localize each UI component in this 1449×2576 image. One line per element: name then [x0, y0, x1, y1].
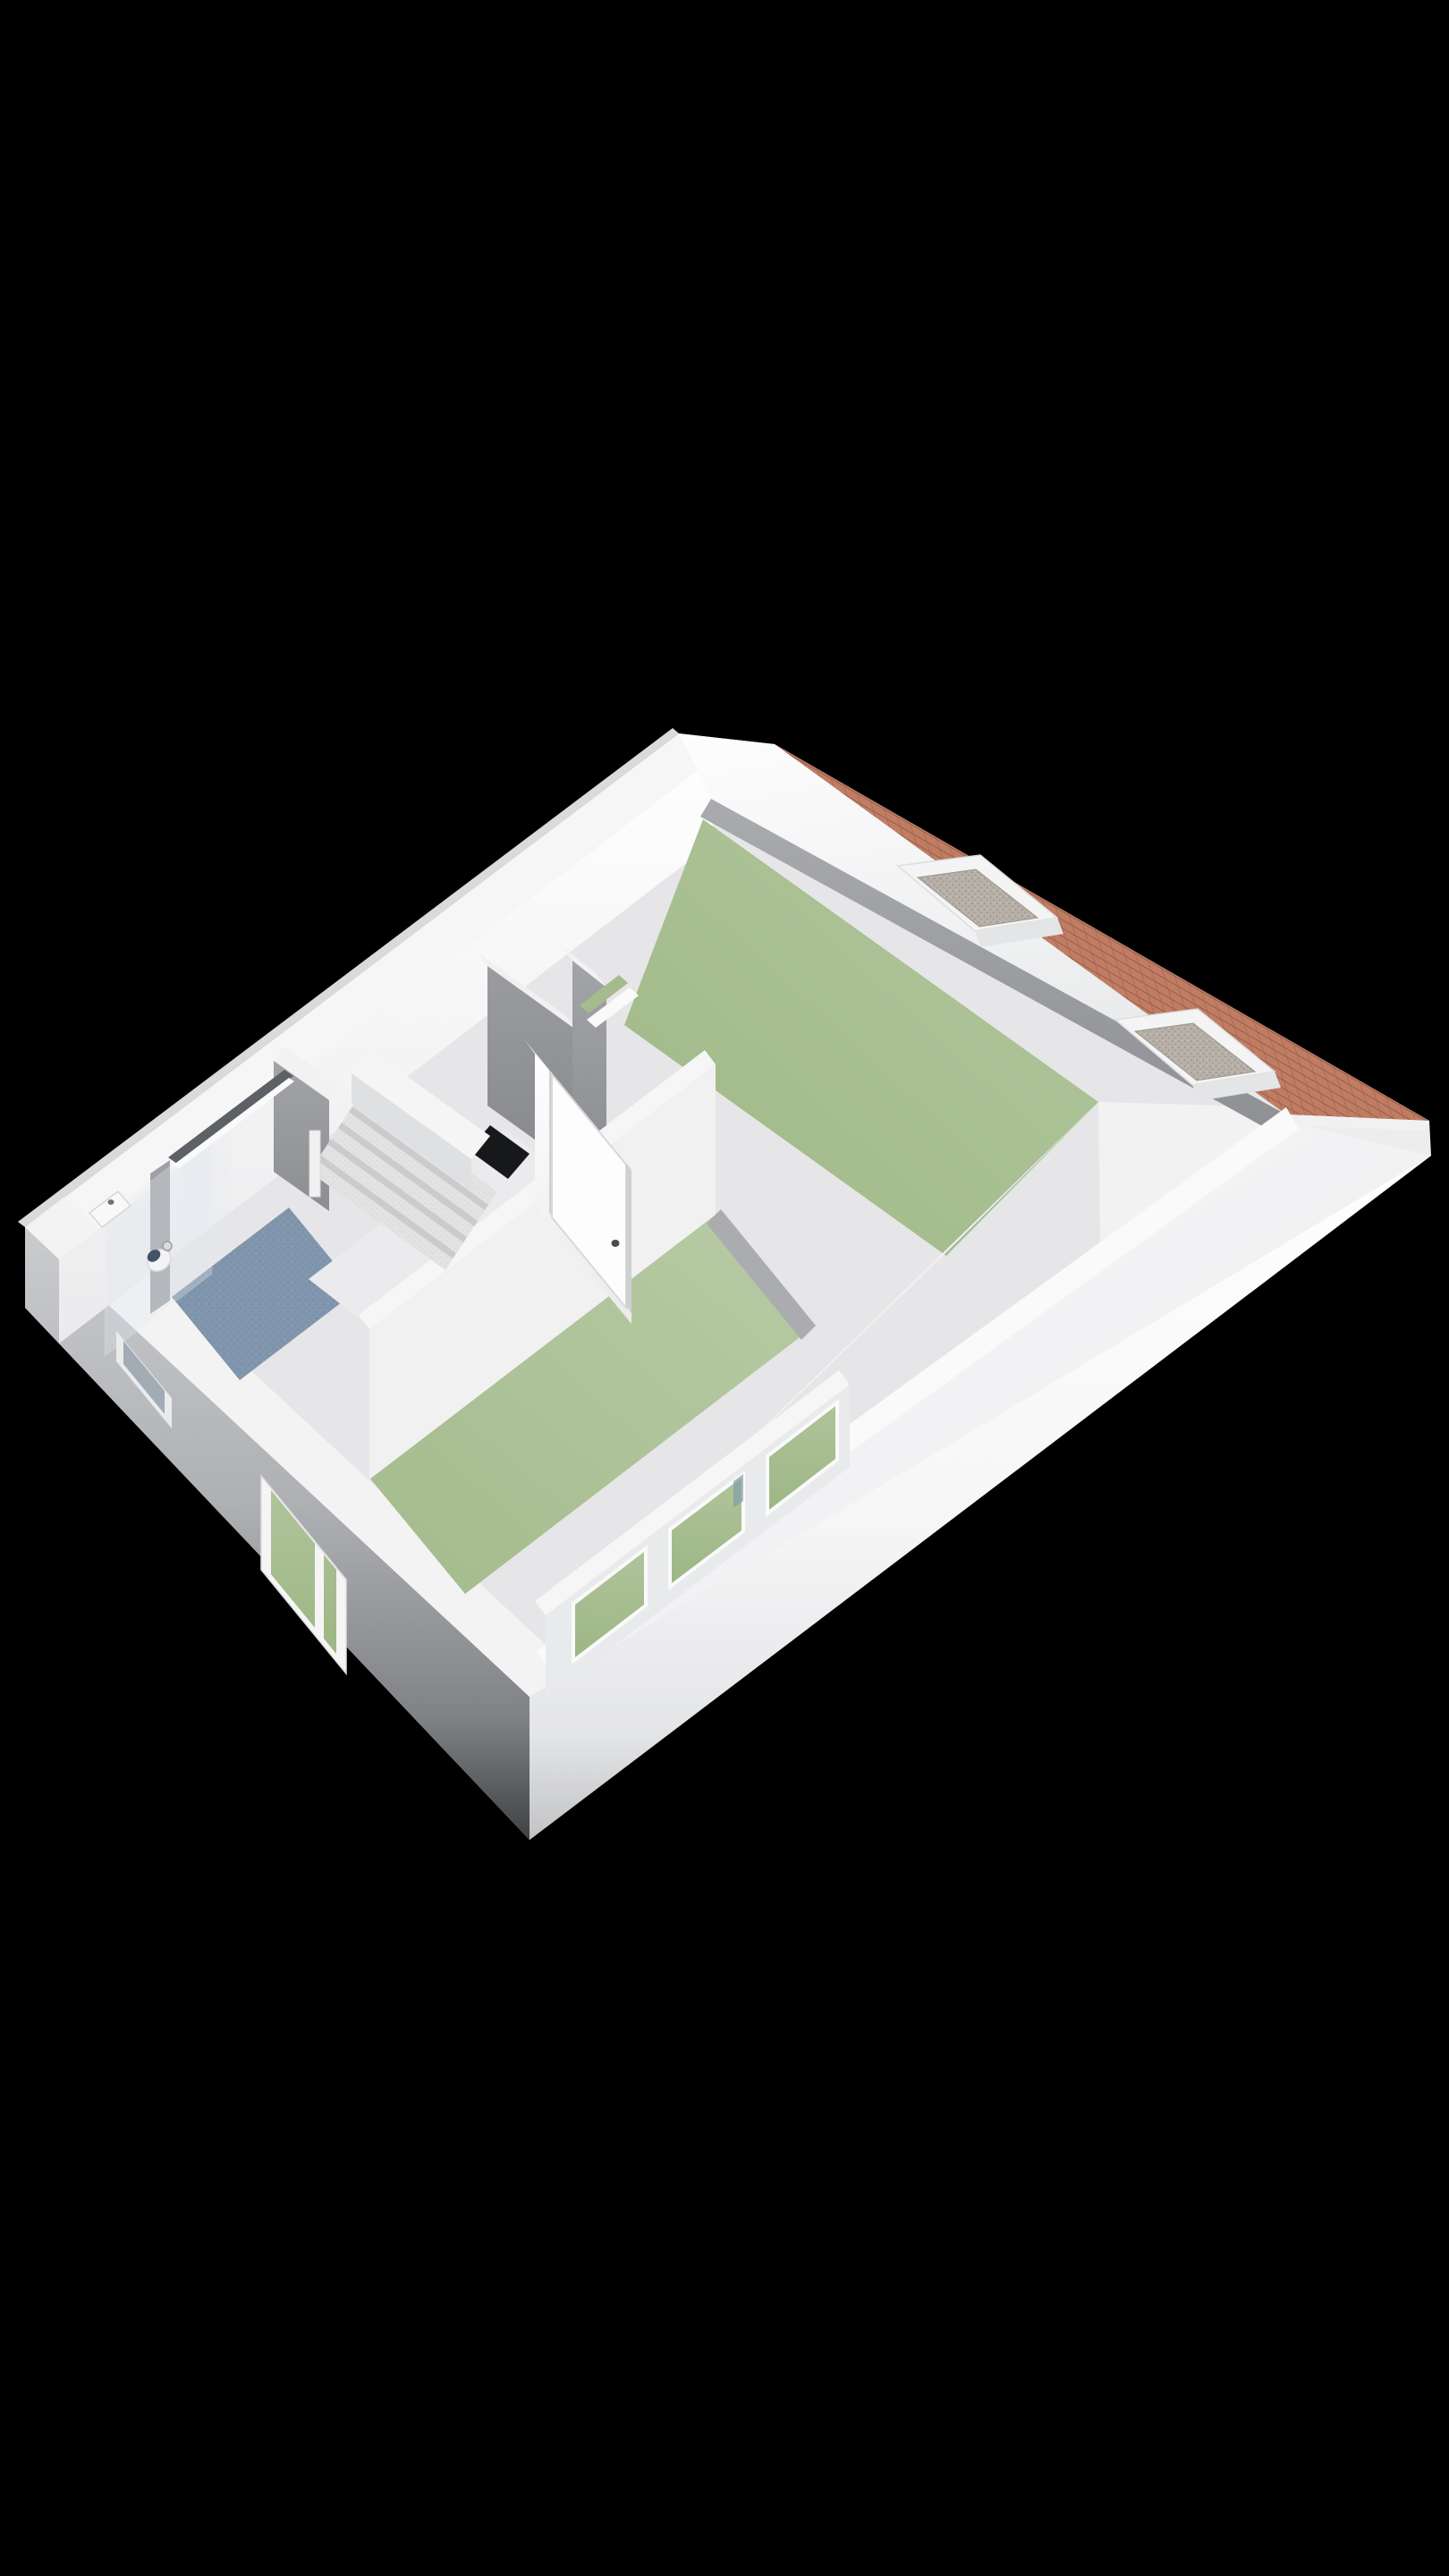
door-handle	[612, 1240, 620, 1247]
door-jamb-right	[626, 1163, 631, 1313]
floorplan-3d-render	[0, 0, 1449, 2576]
big-window-mullion	[315, 1544, 324, 1642]
stair-newel-post	[309, 1131, 320, 1197]
floorplan-canvas	[0, 0, 1449, 2576]
toilet-button	[163, 1241, 172, 1250]
basin-faucet	[108, 1199, 114, 1205]
